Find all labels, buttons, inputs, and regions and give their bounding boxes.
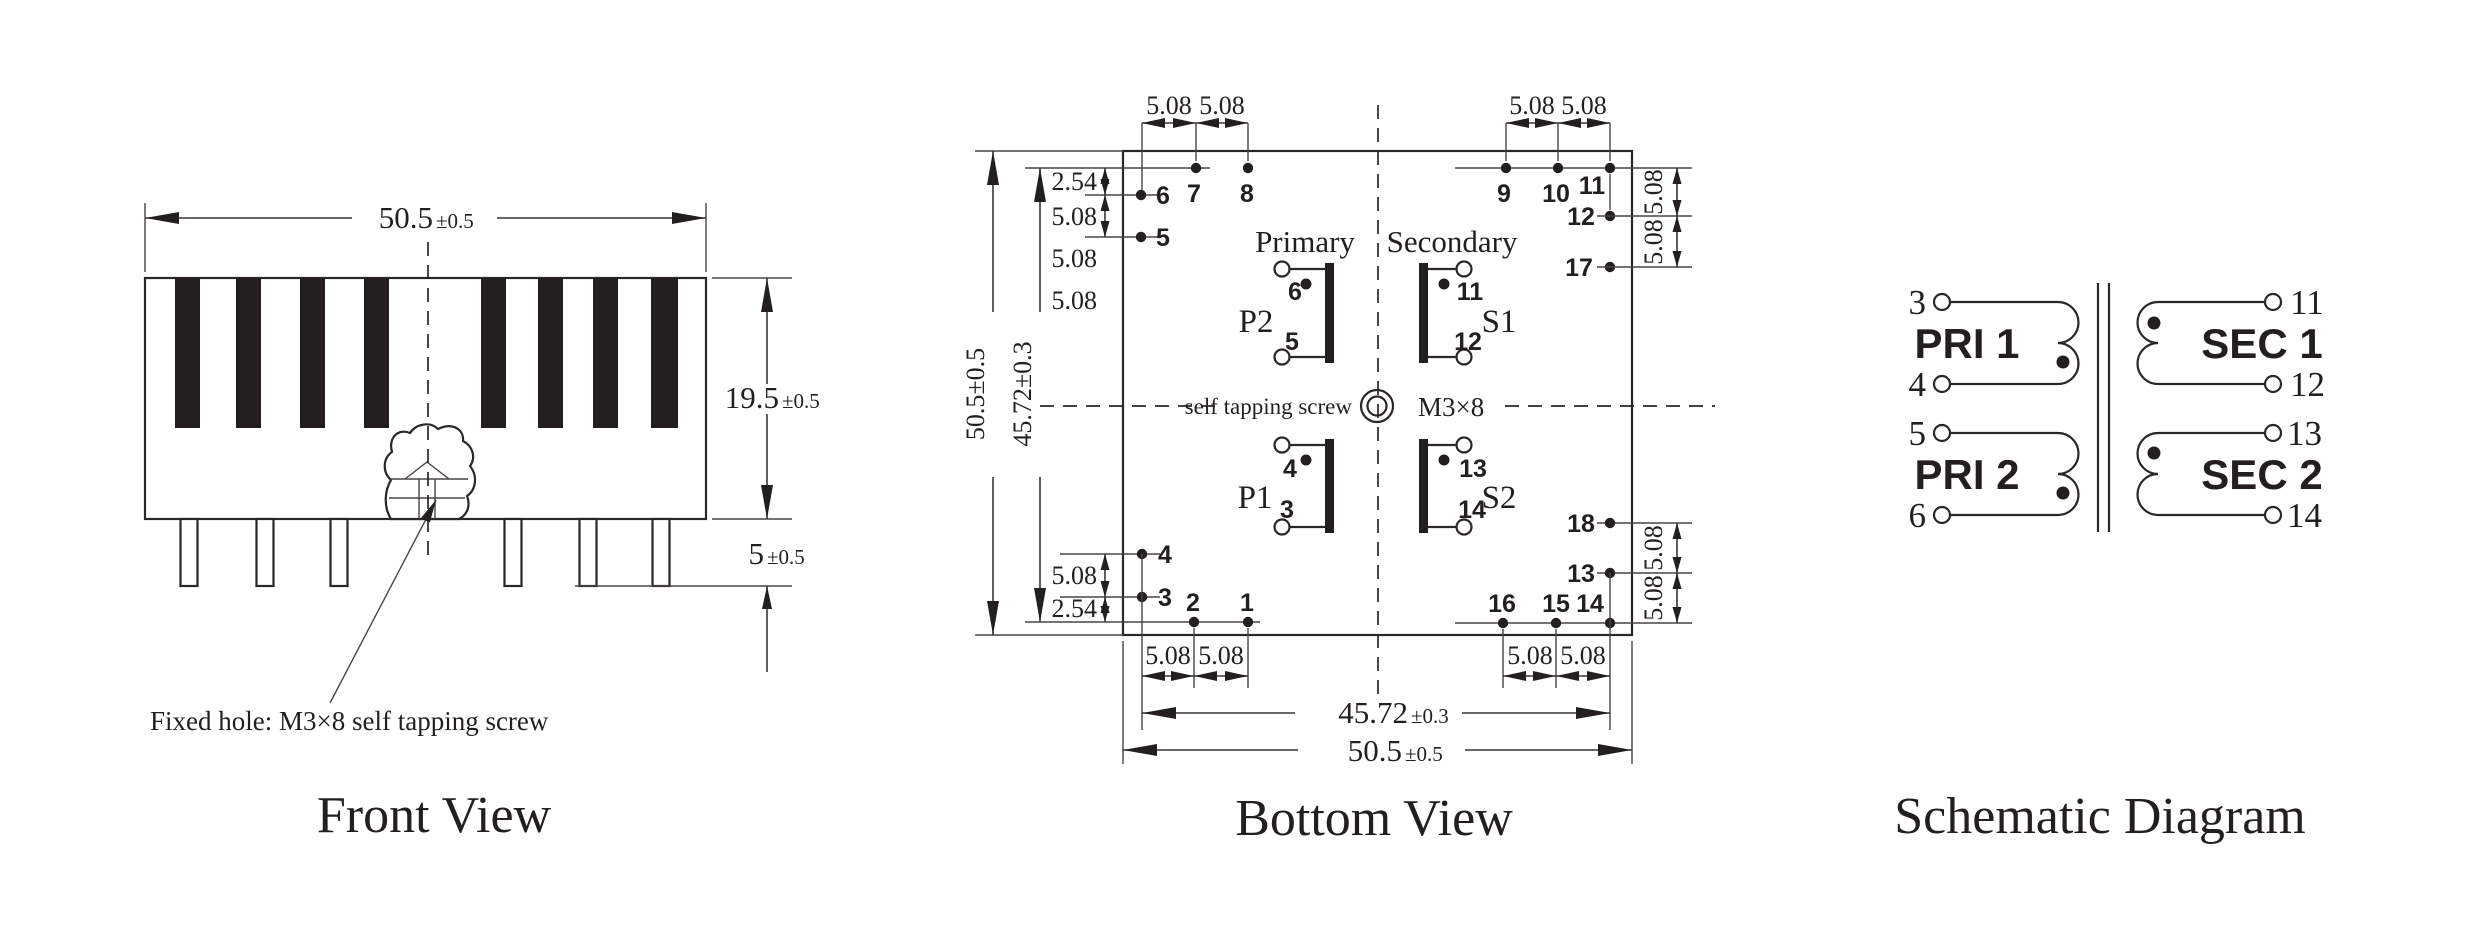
bottom-inner-height: 45.72±0.3 — [1008, 341, 1037, 446]
pin — [580, 519, 597, 586]
p2-pin-top: 6 — [1288, 278, 1302, 306]
fin — [236, 278, 261, 428]
primary-label: Primary — [1255, 224, 1355, 259]
schematic-pin-11: 11 — [2290, 283, 2324, 322]
schematic-pin-4: 4 — [1909, 365, 1927, 404]
phase-dot — [1301, 455, 1312, 466]
drawing-canvas: 50.5 ±0.5 — [0, 0, 2480, 945]
pin-10-pad — [1553, 163, 1563, 173]
pin-9-pad — [1501, 163, 1511, 173]
pin-2-label: 2 — [1186, 589, 1200, 617]
schematic-pin-14: 14 — [2287, 496, 2322, 535]
pin-18-pad — [1605, 518, 1615, 528]
pin-7-label: 7 — [1187, 180, 1201, 208]
fin — [175, 278, 200, 428]
pin — [653, 519, 670, 586]
terminal-13 — [2265, 425, 2281, 441]
terminal-4 — [1934, 376, 1950, 392]
front-height-tolerance: ±0.5 — [782, 389, 820, 413]
dim-5-08: 5.08 — [1507, 641, 1553, 670]
schematic-title: Schematic Diagram — [1894, 788, 2306, 845]
schematic-pin-12: 12 — [2290, 365, 2325, 404]
dim-5-08: 5.08 — [1146, 91, 1192, 120]
bottom-view-title: Bottom View — [1235, 790, 1513, 847]
dim-2-54: 2.54 — [1052, 167, 1098, 196]
front-pin-value: 5 — [749, 536, 765, 571]
fin — [481, 278, 506, 428]
phase-dot — [1439, 455, 1450, 466]
schematic-pin-6: 6 — [1909, 496, 1927, 535]
schematic-pin-13: 13 — [2287, 414, 2322, 453]
front-height-value: 19.5 — [725, 380, 779, 415]
phase-dot — [1439, 279, 1450, 290]
terminal-12 — [2265, 376, 2281, 392]
sec2-label: SEC 2 — [2201, 451, 2322, 498]
front-width-tolerance: ±0.5 — [436, 209, 474, 233]
schematic-pin-5: 5 — [1909, 414, 1927, 453]
screw-size-label: M3×8 — [1418, 392, 1484, 422]
pin-18-label: 18 — [1567, 510, 1595, 538]
front-width-value: 50.5 — [379, 200, 433, 235]
pin-1-label: 1 — [1240, 589, 1254, 617]
s1-pin-bottom: 12 — [1454, 328, 1482, 356]
s1-label: S1 — [1482, 304, 1517, 340]
fixed-hole-note-text: Fixed hole: M3×8 self tapping screw — [150, 706, 549, 736]
pin-6-pad — [1136, 190, 1146, 200]
dim-5-08: 5.08 — [1052, 202, 1098, 231]
pri2-label: PRI 2 — [1914, 451, 2019, 498]
p1-pin-top: 4 — [1283, 455, 1297, 483]
s2-label: S2 — [1482, 480, 1517, 516]
front-pin-tolerance: ±0.5 — [767, 545, 805, 569]
dim-5-08: 5.08 — [1052, 244, 1098, 273]
pin — [181, 519, 198, 586]
dim-5-08: 5.08 — [1639, 575, 1668, 621]
bottom-overall-width-value: 50.5 — [1348, 733, 1402, 768]
pin-1-pad — [1243, 617, 1253, 627]
phase-dot — [2148, 317, 2161, 330]
dim-5-08: 5.08 — [1560, 641, 1606, 670]
schematic-pin-3: 3 — [1909, 283, 1927, 322]
pin — [257, 519, 274, 586]
p1-label: P1 — [1238, 480, 1273, 516]
dim-5-08: 5.08 — [1561, 91, 1607, 120]
fixing-hole-section — [385, 424, 475, 519]
bottom-overall-height: 50.5±0.5 — [961, 348, 990, 440]
pin-11-label: 11 — [1579, 172, 1606, 200]
pin — [505, 519, 522, 586]
dim-5-08: 5.08 — [1198, 641, 1244, 670]
pin-7-pad — [1191, 163, 1201, 173]
secondary-label: Secondary — [1387, 224, 1518, 259]
pin-15-label: 15 — [1542, 590, 1570, 618]
pin-15-pad — [1551, 618, 1561, 628]
dim-5-08: 5.08 — [1639, 219, 1668, 265]
phase-dot — [2148, 447, 2161, 460]
fin — [593, 278, 618, 428]
dim-5-08: 5.08 — [1199, 91, 1245, 120]
fin — [538, 278, 563, 428]
pin-13-label: 13 — [1567, 560, 1595, 588]
dim-5-08: 5.08 — [1145, 641, 1191, 670]
terminal-3 — [1934, 294, 1950, 310]
sec1-label: SEC 1 — [2201, 320, 2322, 367]
s1-pin-top: 11 — [1457, 278, 1484, 306]
pin-2-pad — [1189, 617, 1199, 627]
datasheet-drawing: 50.5 ±0.5 — [0, 0, 2480, 945]
terminal-14 — [2265, 507, 2281, 523]
terminal-11 — [2265, 294, 2281, 310]
dim-5-08: 5.08 — [1639, 169, 1668, 215]
p1-pin-bottom: 3 — [1280, 496, 1294, 524]
dim-5-08: 5.08 — [1639, 525, 1668, 571]
bottom-inner-width-tolerance: ±0.3 — [1411, 704, 1449, 728]
p2-pin-bottom: 5 — [1285, 328, 1299, 356]
front-view-title: Front View — [317, 787, 552, 844]
pin-14-label: 14 — [1576, 590, 1604, 618]
screw-hole-inner — [1368, 397, 1387, 416]
pin-9-label: 9 — [1497, 180, 1511, 208]
pin-10-label: 10 — [1542, 180, 1570, 208]
pin-16-label: 16 — [1488, 590, 1516, 618]
pin-12-label: 12 — [1567, 203, 1595, 231]
pin-3-label: 3 — [1158, 584, 1172, 612]
terminal-5 — [1934, 425, 1950, 441]
phase-dot — [2057, 487, 2070, 500]
fin — [300, 278, 325, 428]
terminal-6 — [1934, 507, 1950, 523]
pin-5-pad — [1136, 232, 1146, 242]
pin-8-label: 8 — [1240, 180, 1254, 208]
pin-11-pad — [1605, 163, 1615, 173]
pin-17-label: 17 — [1565, 254, 1593, 282]
screw-hole: self tapping screw M3×8 — [1185, 390, 1485, 422]
dim-5-08: 5.08 — [1052, 561, 1098, 590]
phase-dot — [2057, 356, 2070, 369]
pin-16-pad — [1498, 618, 1508, 628]
dim-5-08: 5.08 — [1509, 91, 1555, 120]
dim-5-08: 5.08 — [1052, 286, 1098, 315]
phase-dot — [1301, 279, 1312, 290]
dim-2-54: 2.54 — [1052, 594, 1098, 623]
pin-6-label: 6 — [1156, 182, 1170, 210]
bottom-inner-width-value: 45.72 — [1338, 695, 1408, 730]
s2-pin-top: 13 — [1459, 455, 1487, 483]
fin — [651, 278, 678, 428]
pin — [331, 519, 348, 586]
pin-8-pad — [1243, 163, 1253, 173]
pin-5-label: 5 — [1156, 224, 1170, 252]
bottom-overall-width-tolerance: ±0.5 — [1405, 742, 1443, 766]
fin — [364, 278, 389, 428]
pin-4-label: 4 — [1158, 541, 1172, 569]
pri1-label: PRI 1 — [1914, 320, 2019, 367]
p2-label: P2 — [1239, 304, 1274, 340]
